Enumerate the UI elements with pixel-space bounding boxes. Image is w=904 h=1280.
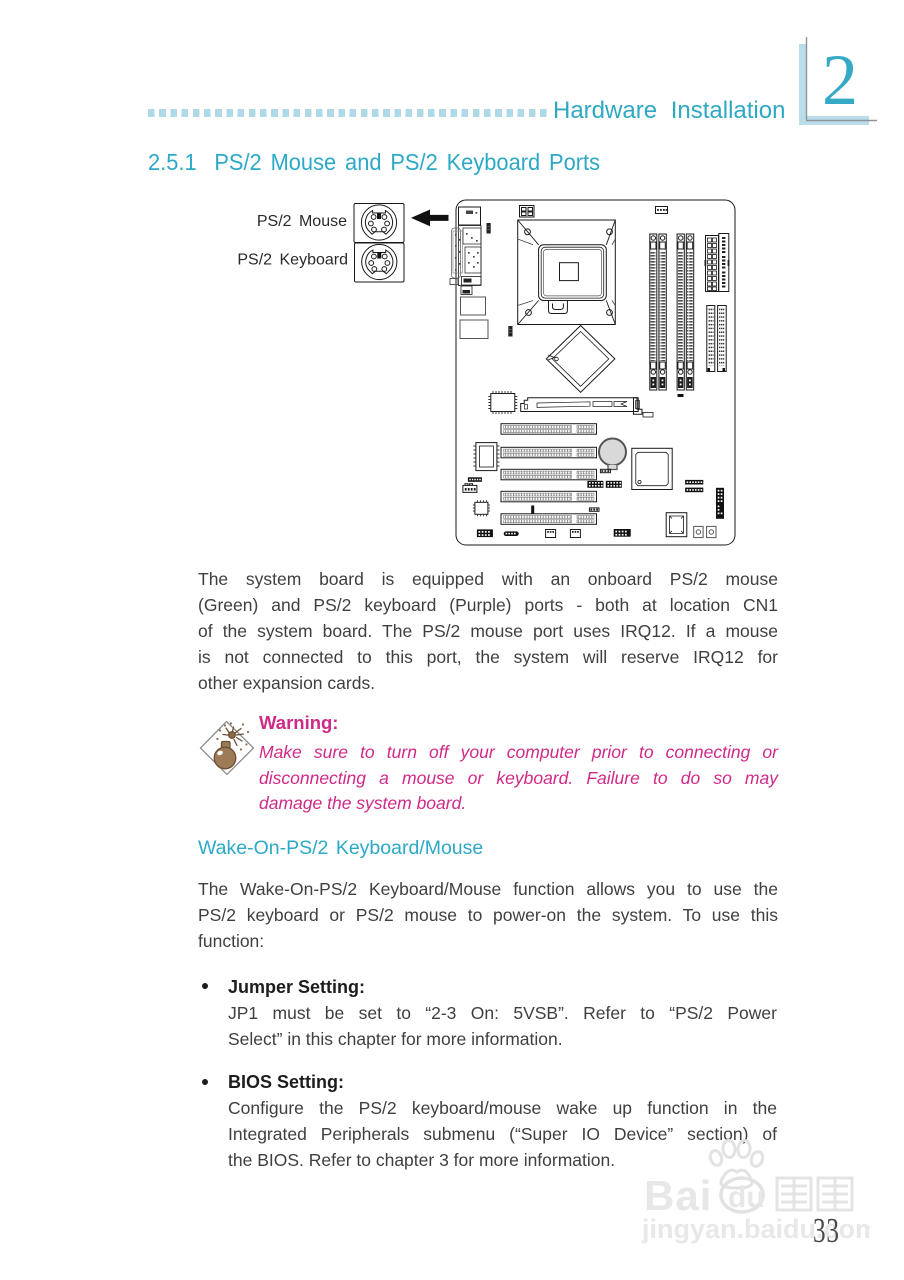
svg-text:PS/2 Mouse: PS/2 Mouse — [257, 213, 347, 230]
svg-text:2: 2 — [822, 40, 858, 120]
svg-text:du: du — [728, 1181, 765, 1214]
svg-text:Bai: Bai — [644, 1172, 712, 1219]
svg-text:PS/2 Keyboard: PS/2 Keyboard — [237, 252, 348, 269]
